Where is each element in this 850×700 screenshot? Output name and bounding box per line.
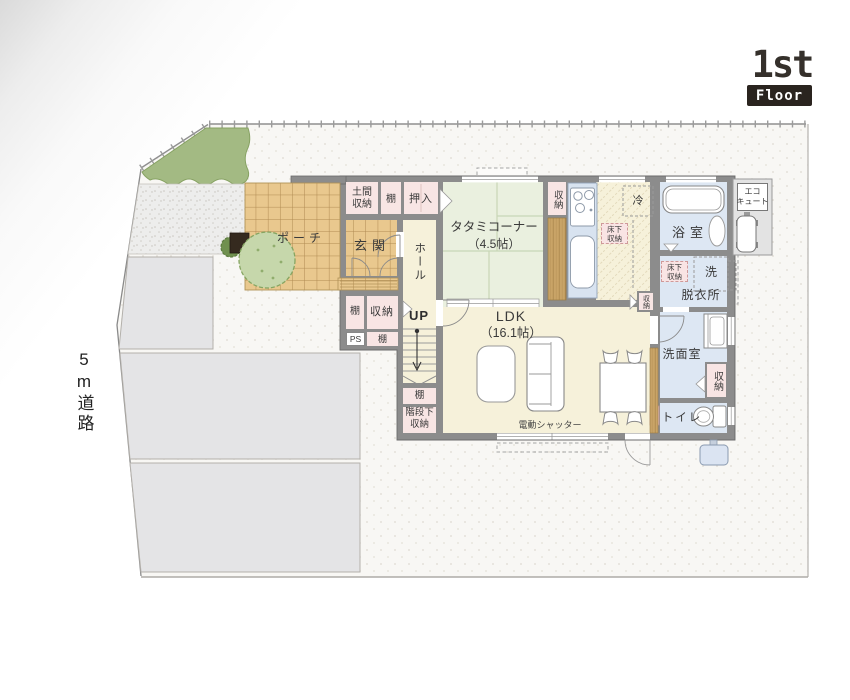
tree bbox=[239, 232, 295, 288]
storage-washroom-floor bbox=[706, 363, 727, 398]
bathtub bbox=[663, 186, 724, 213]
parking-stall-2 bbox=[120, 353, 360, 459]
pantry-floor bbox=[548, 182, 566, 215]
dressing-washroom-opening bbox=[663, 307, 689, 312]
washroom-window bbox=[728, 317, 735, 345]
floor-number: 1st bbox=[751, 44, 813, 84]
ecocute-tank bbox=[736, 212, 758, 252]
tatami-floor bbox=[443, 182, 543, 307]
parking-stall-1 bbox=[119, 257, 213, 349]
under-stairs-storage-floor bbox=[403, 407, 436, 433]
shutter-window bbox=[497, 434, 608, 440]
hall-floor bbox=[403, 220, 436, 332]
wood-counter-wall bbox=[548, 218, 566, 300]
pipe-space-floor bbox=[346, 332, 364, 346]
shelf-west-floor bbox=[346, 296, 364, 329]
sofa bbox=[527, 337, 564, 411]
doma-storage-floor bbox=[346, 182, 378, 214]
vanity bbox=[704, 314, 727, 348]
shelf-west-lower-floor bbox=[367, 332, 398, 346]
shelf-under-stairs-floor bbox=[403, 388, 436, 404]
dining-table bbox=[600, 363, 646, 412]
storage-ldk-box bbox=[638, 292, 654, 311]
kitchen-sink bbox=[571, 236, 595, 288]
stove bbox=[571, 188, 595, 226]
floor-plan-page: 5m道路 1st Floor ポーチ 玄関 土間 収納 棚 押入 タタミコーナー… bbox=[0, 0, 850, 700]
shelf-entry-floor bbox=[381, 182, 401, 214]
storage-west-floor bbox=[367, 296, 398, 329]
floor-badge-text: Floor bbox=[756, 88, 803, 104]
entrance-floor bbox=[346, 220, 397, 276]
floor-plan-svg bbox=[0, 0, 850, 700]
bath-door bbox=[709, 216, 725, 246]
toilet-fixture bbox=[694, 406, 727, 427]
parking-stall-3 bbox=[130, 463, 360, 572]
toilet-window bbox=[728, 407, 735, 425]
floor-badge: Floor bbox=[747, 85, 812, 106]
wood-feature-wall bbox=[650, 348, 658, 433]
rug-table bbox=[477, 346, 515, 402]
